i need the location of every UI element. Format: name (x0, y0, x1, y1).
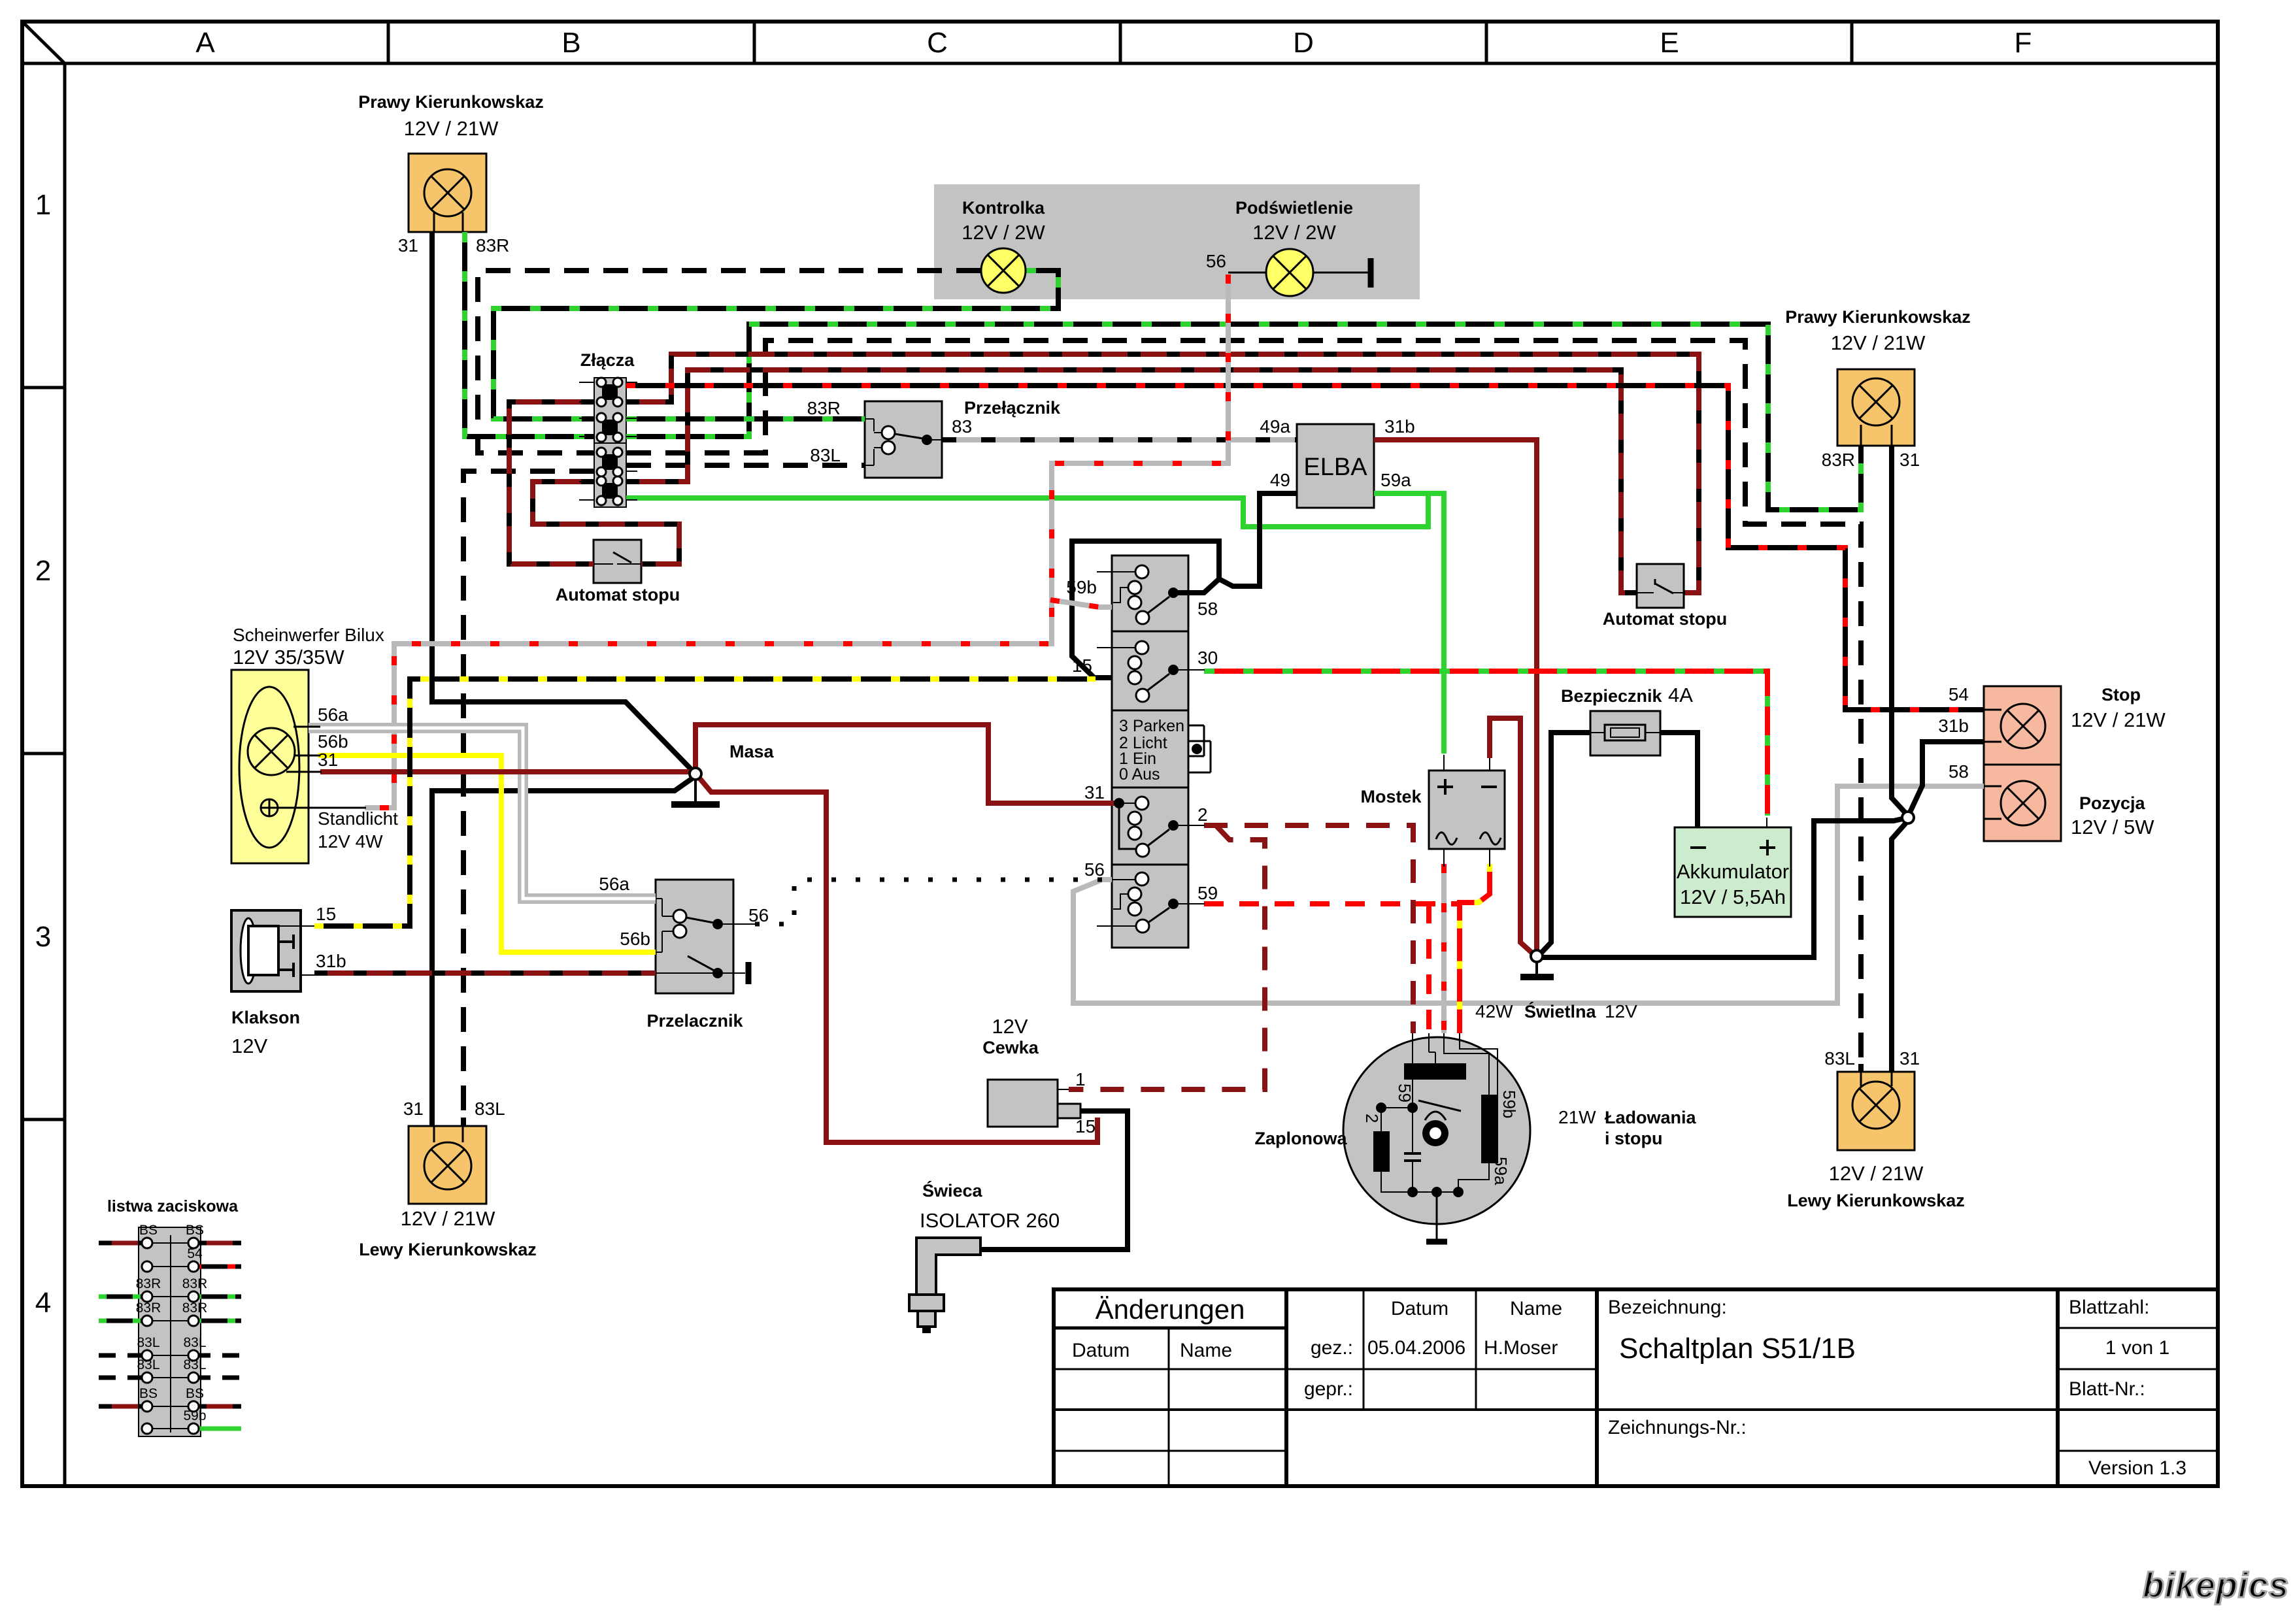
svg-text:Blattzahl:: Blattzahl: (2069, 1297, 2149, 1318)
svg-text:56: 56 (1206, 251, 1226, 271)
svg-text:83L: 83L (183, 1335, 206, 1350)
svg-text:12V / 21W: 12V / 21W (2071, 708, 2166, 731)
svg-text:59b: 59b (183, 1408, 206, 1423)
svg-text:54: 54 (1949, 684, 1969, 704)
svg-text:Bezeichnung:: Bezeichnung: (1608, 1297, 1727, 1318)
svg-text:1 von 1: 1 von 1 (2105, 1337, 2169, 1359)
svg-text:Świeca: Świeca (922, 1180, 983, 1201)
svg-text:4: 4 (35, 1287, 51, 1319)
svg-text:83R: 83R (182, 1276, 208, 1291)
svg-text:Datum: Datum (1072, 1340, 1130, 1361)
svg-text:83R: 83R (807, 398, 841, 418)
svg-text:Kontrolka: Kontrolka (962, 198, 1045, 218)
svg-text:i stopu: i stopu (1605, 1129, 1663, 1148)
svg-text:56: 56 (748, 905, 769, 925)
svg-text:83R: 83R (136, 1276, 161, 1291)
svg-text:listwa zaciskowa: listwa zaciskowa (107, 1197, 239, 1216)
svg-text:83L: 83L (1824, 1048, 1855, 1069)
svg-text:BS: BS (186, 1386, 204, 1401)
svg-text:12V: 12V (231, 1035, 267, 1057)
svg-text:83L: 83L (810, 445, 841, 465)
svg-text:Lewy Kierunkowskaz: Lewy Kierunkowskaz (359, 1240, 537, 1259)
svg-text:Przelacznik: Przelacznik (646, 1011, 743, 1031)
svg-text:83R: 83R (182, 1301, 208, 1316)
svg-text:15: 15 (1072, 655, 1092, 676)
svg-text:59b: 59b (1066, 577, 1097, 597)
svg-text:58: 58 (1197, 599, 1218, 619)
svg-text:Zeichnungs-Nr.:: Zeichnungs-Nr.: (1608, 1417, 1747, 1438)
svg-text:31: 31 (1084, 782, 1105, 803)
svg-text:59: 59 (1197, 883, 1218, 903)
svg-text:15: 15 (316, 904, 336, 924)
svg-text:83L: 83L (137, 1335, 159, 1350)
svg-text:56b: 56b (620, 929, 650, 949)
svg-text:gez.:: gez.: (1311, 1337, 1353, 1359)
svg-text:A: A (195, 27, 215, 59)
svg-text:Cewka: Cewka (982, 1038, 1039, 1057)
svg-text:Klakson: Klakson (231, 1008, 300, 1027)
svg-text:BS: BS (139, 1386, 158, 1401)
svg-text:Zaplonowa: Zaplonowa (1255, 1129, 1348, 1148)
svg-text:C: C (927, 27, 948, 59)
svg-text:31: 31 (318, 750, 338, 770)
svg-text:H.Moser: H.Moser (1484, 1337, 1558, 1359)
svg-text:4A: 4A (1668, 684, 1693, 706)
svg-text:59b: 59b (1499, 1090, 1519, 1118)
svg-text:83L: 83L (137, 1357, 159, 1372)
svg-text:Scheinwerfer Bilux: Scheinwerfer Bilux (233, 625, 384, 645)
svg-text:ELBA: ELBA (1303, 454, 1367, 481)
svg-text:3: 3 (35, 921, 51, 953)
svg-text:21W: 21W (1558, 1107, 1596, 1127)
svg-text:59: 59 (1395, 1084, 1414, 1102)
svg-text:Blatt-Nr.:: Blatt-Nr.: (2069, 1378, 2145, 1400)
svg-text:Änderungen: Änderungen (1096, 1294, 1245, 1325)
svg-text:BS: BS (139, 1223, 158, 1238)
svg-text:12V / 21W: 12V / 21W (1829, 1162, 1924, 1185)
svg-text:15: 15 (1075, 1116, 1096, 1136)
svg-text:49: 49 (1270, 470, 1290, 490)
svg-text:3 Parken: 3 Parken (1119, 717, 1184, 735)
svg-text:F: F (2015, 27, 2032, 59)
svg-text:Mostek: Mostek (1360, 787, 1422, 806)
svg-text:Name: Name (1180, 1340, 1232, 1361)
svg-text:Automat stopu: Automat stopu (556, 585, 680, 605)
svg-text:Name: Name (1510, 1298, 1562, 1319)
svg-text:83L: 83L (475, 1099, 505, 1119)
svg-text:Świetlna: Świetlna (1524, 1001, 1597, 1021)
svg-text:12V / 2W: 12V / 2W (962, 221, 1045, 244)
svg-text:56a: 56a (318, 704, 348, 725)
svg-text:05.04.2006: 05.04.2006 (1367, 1337, 1465, 1359)
svg-text:Pozycja: Pozycja (2079, 793, 2146, 813)
svg-text:Prawy Kierunkowskaz: Prawy Kierunkowskaz (1785, 307, 1971, 327)
svg-text:83: 83 (952, 416, 972, 437)
svg-text:2: 2 (1362, 1114, 1382, 1123)
svg-text:12V / 21W: 12V / 21W (404, 117, 499, 140)
svg-text:56: 56 (1084, 859, 1105, 880)
svg-text:BS: BS (186, 1223, 204, 1238)
svg-text:59a: 59a (1491, 1157, 1511, 1185)
svg-text:Lewy Kierunkowskaz: Lewy Kierunkowskaz (1787, 1191, 1965, 1210)
svg-text:31: 31 (1900, 1048, 1920, 1069)
svg-text:E: E (1660, 27, 1679, 59)
svg-text:bikepics: bikepics (2143, 1566, 2289, 1605)
svg-text:12V / 5,5Ah: 12V / 5,5Ah (1680, 886, 1786, 908)
svg-text:49a: 49a (1260, 416, 1290, 437)
svg-text:Przełącznik: Przełącznik (964, 398, 1061, 418)
svg-text:58: 58 (1949, 761, 1969, 782)
svg-text:B: B (561, 27, 580, 59)
svg-text:54: 54 (187, 1246, 203, 1261)
svg-text:56a: 56a (599, 874, 629, 894)
svg-text:59a: 59a (1381, 470, 1411, 490)
svg-text:12V 4W: 12V 4W (318, 831, 383, 852)
svg-text:31: 31 (1900, 450, 1920, 470)
svg-text:12V / 21W: 12V / 21W (401, 1207, 495, 1230)
svg-text:2: 2 (35, 555, 51, 587)
svg-text:Version 1.3: Version 1.3 (2088, 1457, 2186, 1479)
svg-text:31b: 31b (1938, 716, 1969, 736)
svg-text:Akkumulator: Akkumulator (1677, 860, 1789, 883)
svg-text:83L: 83L (183, 1357, 206, 1372)
svg-text:ISOLATOR 260: ISOLATOR 260 (920, 1209, 1060, 1232)
svg-text:12V / 21W: 12V / 21W (1831, 331, 1926, 354)
svg-text:83R: 83R (1822, 450, 1855, 470)
svg-text:Bezpiecznik: Bezpiecznik (1561, 686, 1663, 706)
svg-text:Datum: Datum (1391, 1298, 1448, 1319)
svg-text:0 Aus: 0 Aus (1119, 765, 1160, 784)
svg-text:Ładowania: Ładowania (1605, 1108, 1697, 1127)
svg-text:Schaltplan S51/1B: Schaltplan S51/1B (1619, 1333, 1856, 1365)
svg-text:31: 31 (403, 1099, 424, 1119)
svg-text:31b: 31b (316, 951, 346, 971)
svg-text:31b: 31b (1384, 416, 1415, 437)
svg-text:83R: 83R (476, 235, 509, 256)
svg-text:Masa: Masa (729, 742, 775, 761)
svg-text:gepr.:: gepr.: (1304, 1378, 1353, 1400)
svg-text:12V 35/35W: 12V 35/35W (233, 646, 344, 669)
svg-text:12V: 12V (992, 1015, 1028, 1038)
svg-text:56b: 56b (318, 731, 348, 752)
svg-text:12V / 5W: 12V / 5W (2071, 816, 2154, 838)
svg-text:12V / 2W: 12V / 2W (1252, 221, 1336, 244)
svg-text:Automat stopu: Automat stopu (1603, 609, 1727, 629)
svg-text:Standlicht: Standlicht (318, 808, 398, 829)
svg-text:42W: 42W (1475, 1001, 1513, 1021)
svg-text:12V: 12V (1605, 1001, 1637, 1021)
svg-text:Podświetlenie: Podświetlenie (1235, 198, 1353, 218)
svg-text:1: 1 (35, 189, 51, 221)
svg-text:83R: 83R (136, 1301, 161, 1316)
svg-text:1: 1 (1075, 1069, 1086, 1089)
svg-text:Prawy Kierunkowskaz: Prawy Kierunkowskaz (358, 92, 544, 112)
svg-text:Stop: Stop (2101, 685, 2141, 704)
svg-text:2: 2 (1197, 804, 1208, 825)
svg-text:D: D (1293, 27, 1314, 59)
svg-text:30: 30 (1197, 648, 1218, 668)
svg-text:31: 31 (398, 235, 418, 256)
svg-text:Złącza: Złącza (580, 350, 635, 370)
